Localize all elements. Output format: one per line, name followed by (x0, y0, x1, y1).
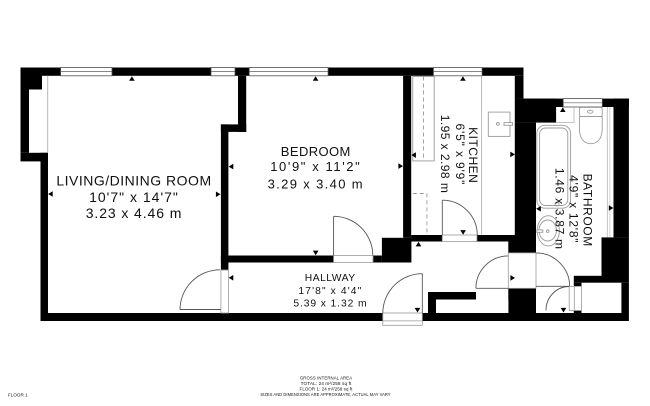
svg-text:LIVING/DINING ROOM: LIVING/DINING ROOM (56, 173, 211, 189)
svg-text:10'7" x 14'7": 10'7" x 14'7" (89, 189, 179, 205)
svg-text:TOTAL: 24 m²/258 sq ft: TOTAL: 24 m²/258 sq ft (301, 381, 352, 386)
svg-text:KITCHEN: KITCHEN (466, 127, 480, 183)
svg-text:SIZES AND DIMENSIONS ARE APPRO: SIZES AND DIMENSIONS ARE APPROXIMATE, AC… (260, 392, 390, 397)
svg-text:FLOOR 1: 24 m²/258 sq ft: FLOOR 1: 24 m²/258 sq ft (300, 386, 354, 391)
svg-text:10'9" x 11'2": 10'9" x 11'2" (270, 159, 361, 174)
svg-text:3.23 x 4.46 m: 3.23 x 4.46 m (86, 205, 183, 221)
svg-text:GROSS INTERNAL AREA: GROSS INTERNAL AREA (300, 375, 352, 380)
svg-text:FLOOR 1: FLOOR 1 (8, 392, 28, 397)
svg-text:6'5" x 9'9": 6'5" x 9'9" (453, 123, 467, 185)
svg-text:BATHROOM: BATHROOM (581, 174, 595, 247)
svg-text:BEDROOM: BEDROOM (281, 144, 351, 159)
svg-text:17'8" x 4'4": 17'8" x 4'4" (298, 286, 362, 297)
svg-text:4'9" x 12'8": 4'9" x 12'8" (567, 175, 581, 243)
svg-text:HALLWAY: HALLWAY (305, 273, 356, 284)
svg-text:1.95 x 2.98 m: 1.95 x 2.98 m (438, 115, 452, 194)
svg-text:3.29 x 3.40 m: 3.29 x 3.40 m (268, 176, 364, 191)
svg-text:5.39 x 1.32 m: 5.39 x 1.32 m (293, 298, 367, 309)
svg-text:1.46 x 3.87 m: 1.46 x 3.87 m (552, 168, 566, 250)
